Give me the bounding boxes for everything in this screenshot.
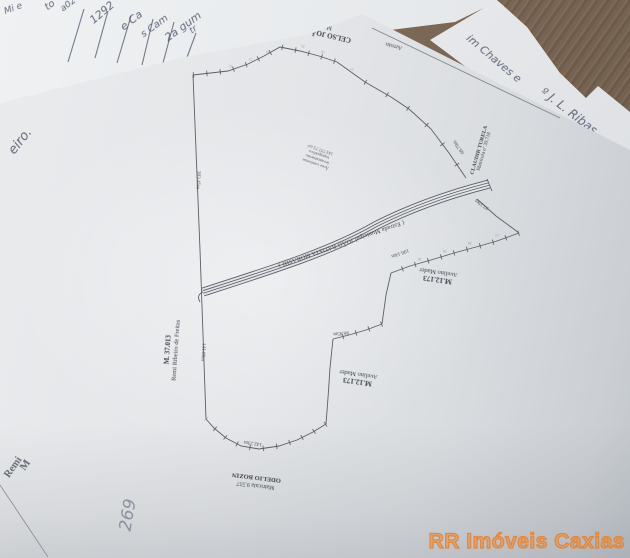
tick-label: 14 (266, 50, 270, 55)
boundary-bottom-curve (206, 419, 326, 449)
photo-of-survey-plat: im Chaves e º J. L. Ribas Mi e to a02 12… (0, 0, 630, 558)
tick-label: 18 (418, 257, 422, 261)
boundary-staircase (391, 233, 519, 273)
dimension-label: 303.45m (195, 171, 202, 190)
tick-label: 13 (249, 57, 253, 62)
tick-label: 19 (443, 249, 447, 253)
tick-label: 16 (321, 50, 326, 55)
dimension-label: 141.80m (200, 343, 207, 362)
watermark: RR Imóveis Caxias (429, 530, 625, 554)
tick-label: 15 (301, 44, 306, 49)
boundary-left (193, 75, 206, 419)
tick-label: 21 (495, 233, 499, 237)
tick-label: 20 (468, 241, 472, 245)
road-end-hook (199, 292, 203, 302)
tick-label: 12 (229, 64, 233, 69)
boundary-right-upper (337, 62, 466, 178)
pen-line-bottomleft (0, 485, 48, 557)
